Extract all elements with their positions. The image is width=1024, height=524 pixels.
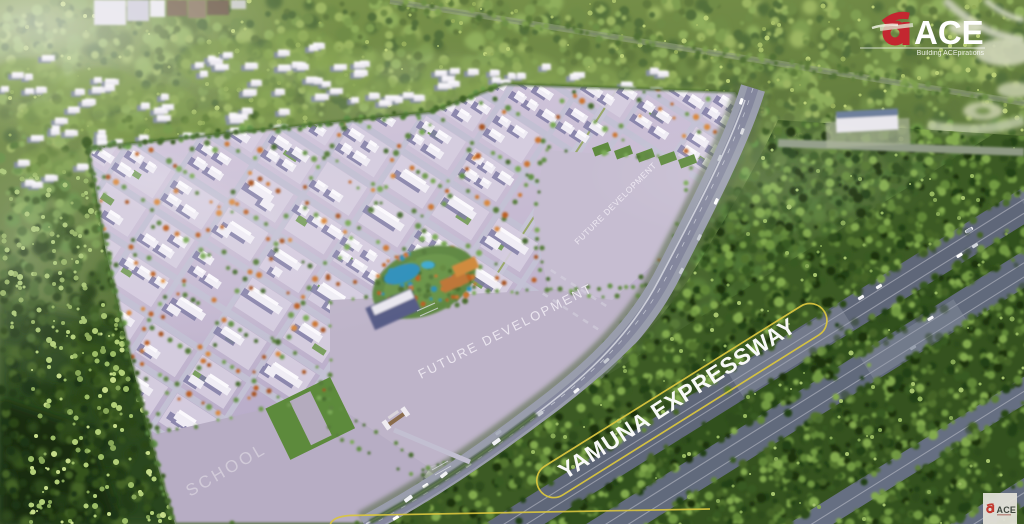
- svg-text:ACE: ACE: [914, 14, 984, 51]
- svg-text:Building ACEpirations: Building ACEpirations: [917, 50, 985, 57]
- svg-text:ACE: ACE: [997, 505, 1017, 515]
